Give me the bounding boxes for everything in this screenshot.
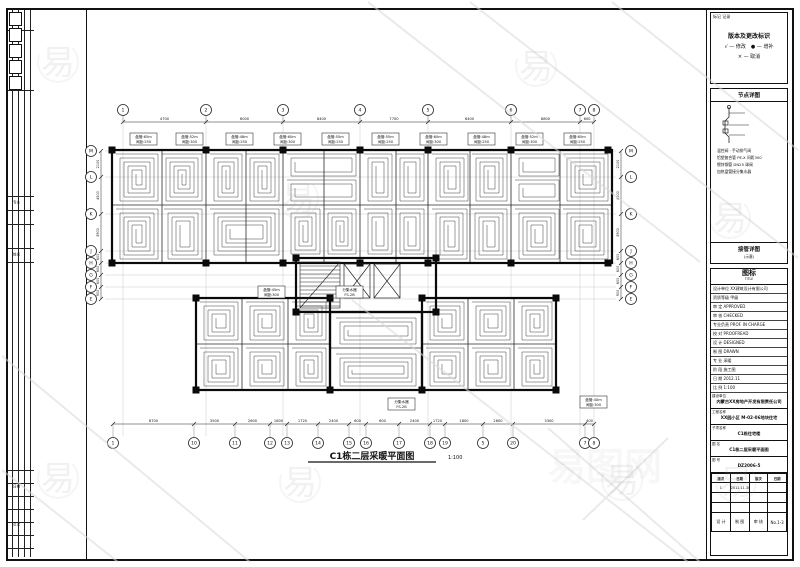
- svg-text:600: 600: [616, 278, 620, 284]
- staircase: [300, 262, 340, 308]
- title-block-field: 图 名C1栋二层采暖平面图: [711, 441, 787, 457]
- version-table-cell: 制 图: [730, 513, 749, 532]
- title-block-row: 资质等级 甲级: [711, 294, 787, 303]
- svg-text:间距:250: 间距:250: [378, 139, 394, 144]
- svg-text:盘管:52m: 盘管:52m: [181, 134, 198, 139]
- svg-text:1800: 1800: [274, 419, 284, 423]
- svg-text:G: G: [629, 273, 633, 279]
- axis-col-left: MLKJHGFE210045003900600600600900: [86, 146, 104, 305]
- svg-text:H: H: [89, 261, 92, 267]
- svg-text:间距:250: 间距:250: [136, 139, 152, 144]
- svg-text:600: 600: [354, 419, 362, 423]
- legend-corner-label: 标记 记录: [713, 15, 730, 20]
- svg-text:1:100: 1:100: [448, 455, 462, 461]
- svg-text:G: G: [89, 273, 93, 279]
- version-table-cell: 日期: [730, 474, 749, 483]
- title-block-field: 子项名称C1栋住宅楼: [711, 425, 787, 441]
- svg-text:盘管:45m: 盘管:45m: [263, 287, 280, 292]
- title-block-field: 工程名称XX园小区 M-02-06地块住宅: [711, 409, 787, 425]
- svg-text:7: 7: [579, 108, 582, 114]
- version-table-cell: 日期: [768, 474, 787, 483]
- svg-text:E: E: [630, 297, 633, 303]
- svg-text:盘管:60m: 盘管:60m: [425, 134, 442, 139]
- detail-annotation-line: 加热盘管接分集水器: [717, 168, 783, 175]
- title-block-row: 专 业 采暖: [711, 357, 787, 366]
- svg-text:F: F: [90, 285, 93, 291]
- svg-text:600: 600: [584, 117, 592, 121]
- svg-text:13: 13: [284, 441, 290, 447]
- svg-text:8800: 8800: [541, 117, 551, 121]
- svg-text:盘管:52m: 盘管:52m: [521, 134, 538, 139]
- svg-text:F: F: [630, 285, 633, 291]
- floor-plan-canvas: 1234567847006000840077006400880060011011…: [0, 0, 800, 567]
- svg-text:2400: 2400: [410, 419, 420, 423]
- svg-text:600: 600: [96, 266, 100, 272]
- title-block-row: 比 例 1:100: [711, 384, 787, 393]
- svg-text:3500: 3500: [210, 419, 220, 423]
- title-block: 图标 TITLE 设计单位 XX建筑设计有限公司资质等级 甲级审 定 APPRO…: [710, 268, 788, 556]
- drawing-title: C1栋二层采暖平面图1:100: [308, 450, 462, 462]
- version-table-cell: No.1-3: [768, 513, 787, 532]
- version-table-cell: [768, 493, 787, 503]
- detail-box: 节点详图 温控阀 · 手动排气阀铝塑复合管 PE-X 间距300镀锌钢管 DN2…: [710, 88, 788, 264]
- detail-annotation-line: 温控阀 · 手动排气阀: [717, 147, 783, 154]
- version-table-cell: [749, 483, 768, 493]
- svg-text:600: 600: [96, 278, 100, 284]
- svg-text:间距:250: 间距:250: [328, 139, 344, 144]
- title-block-row: 专业负责 PROF. IN CHARGE: [711, 321, 787, 330]
- title-block-row: 设 计 DESIGNED: [711, 339, 787, 348]
- svg-text:FS-2B: FS-2B: [344, 293, 355, 297]
- version-table-cell: [730, 503, 749, 513]
- svg-text:L: L: [90, 175, 93, 181]
- svg-text:7700: 7700: [389, 117, 399, 121]
- svg-text:2100: 2100: [96, 160, 100, 169]
- svg-text:8700: 8700: [149, 419, 159, 423]
- heating-coils: [116, 154, 608, 386]
- detail-footer: 接管详图: [711, 242, 787, 253]
- field-value: 内蒙古XX房地产开发有限责任公司: [711, 399, 787, 405]
- svg-text:间距:300: 间距:300: [586, 402, 602, 407]
- svg-text:4500: 4500: [616, 191, 620, 200]
- legend-title: 版本及更改标识: [711, 31, 787, 40]
- svg-text:盘管:55m: 盘管:55m: [327, 134, 344, 139]
- svg-text:16: 16: [363, 441, 369, 447]
- svg-text:2400: 2400: [329, 419, 339, 423]
- svg-text:400: 400: [586, 419, 594, 423]
- svg-text:15: 15: [346, 441, 352, 447]
- svg-text:1720: 1720: [433, 419, 443, 423]
- title-block-row: 日 期 2012.11: [711, 375, 787, 384]
- svg-text:2100: 2100: [616, 160, 620, 169]
- pipe-detail-sketch: [715, 103, 783, 145]
- version-table-cell: [749, 493, 768, 503]
- version-table-cell: [712, 503, 731, 513]
- title-block-field: 图 号DZ2006-5: [711, 457, 787, 473]
- svg-text:3300: 3300: [544, 419, 554, 423]
- title-block-row: 校 对 PROOFREAD: [711, 330, 787, 339]
- svg-text:J: J: [629, 249, 631, 255]
- detail-annotations: 温控阀 · 手动排气阀铝塑复合管 PE-X 间距300镀锌钢管 DN25 球阀加…: [717, 147, 783, 175]
- version-table-cell: [730, 493, 749, 503]
- title-block-field: 建设单位内蒙古XX房地产开发有限责任公司: [711, 393, 787, 409]
- svg-text:盘管:40m: 盘管:40m: [585, 397, 602, 402]
- svg-text:5: 5: [427, 108, 430, 114]
- svg-text:间距:300: 间距:300: [264, 292, 280, 297]
- field-value: XX园小区 M-02-06地块住宅: [711, 415, 787, 421]
- version-table-cell: [749, 503, 768, 513]
- title-block-row: 制 图 DRAWN: [711, 348, 787, 357]
- title-block-row: 设计单位 XX建筑设计有限公司: [711, 285, 787, 294]
- version-table: 版次日期版次日期12012.11.30设 计制 图审 核No.1-3: [711, 473, 787, 532]
- svg-text:900: 900: [96, 290, 100, 296]
- svg-text:3900: 3900: [616, 228, 620, 237]
- svg-text:1800: 1800: [459, 419, 469, 423]
- svg-text:17: 17: [396, 441, 402, 447]
- title-block-rows: 设计单位 XX建筑设计有限公司资质等级 甲级审 定 APPROVED审 核 CH…: [711, 285, 787, 393]
- svg-text:间距:300: 间距:300: [280, 139, 296, 144]
- detail-annotation-line: 铝塑复合管 PE-X 间距300: [717, 154, 783, 161]
- svg-text:1: 1: [112, 441, 115, 447]
- svg-text:间距:300: 间距:300: [182, 139, 198, 144]
- svg-text:600: 600: [616, 254, 620, 260]
- coil-info-boxes: 盘管:65m间距:250盘管:52m间距:300盘管:48m间距:250盘管:6…: [130, 133, 607, 410]
- revision-legend-box: 标记 记录 版本及更改标识 √ — 修改 ● — 增补 × — 取消: [710, 12, 788, 84]
- svg-text:8400: 8400: [317, 117, 327, 121]
- axis-col-right: MLKJHGFE210045003900600600600900: [616, 146, 637, 305]
- version-table-cell: 1: [712, 483, 731, 493]
- svg-text:4700: 4700: [160, 117, 170, 121]
- field-value: C1栋二层采暖平面图: [711, 447, 787, 453]
- detail-annotation-line: 镀锌钢管 DN25 球阀: [717, 161, 783, 168]
- svg-text:7: 7: [584, 441, 587, 447]
- svg-text:8: 8: [593, 441, 596, 447]
- version-table-cell: 审 核: [749, 513, 768, 532]
- svg-text:3900: 3900: [96, 228, 100, 237]
- svg-text:E: E: [90, 297, 93, 303]
- svg-text:600: 600: [616, 266, 620, 272]
- svg-text:6400: 6400: [465, 117, 475, 121]
- field-value: C1栋住宅楼: [711, 431, 787, 437]
- svg-text:900: 900: [616, 290, 620, 296]
- svg-text:盘管:65m: 盘管:65m: [569, 134, 586, 139]
- detail-footer-sub: (示意): [711, 254, 787, 260]
- version-table-cell: [768, 503, 787, 513]
- legend-row: × — 取消: [711, 53, 787, 60]
- svg-text:间距:250: 间距:250: [570, 139, 586, 144]
- version-table-cell: 版次: [712, 474, 731, 483]
- version-table-cell: 2012.11.30: [730, 483, 749, 493]
- svg-text:10: 10: [191, 441, 197, 447]
- svg-text:盘管:65m: 盘管:65m: [135, 134, 152, 139]
- svg-text:8: 8: [593, 108, 596, 114]
- svg-text:分集水器: 分集水器: [342, 287, 357, 292]
- version-table-cell: 设 计: [712, 513, 731, 532]
- version-table-cell: [768, 483, 787, 493]
- svg-text:1: 1: [122, 108, 125, 114]
- svg-text:盘管:48m: 盘管:48m: [473, 134, 490, 139]
- svg-text:2600: 2600: [493, 419, 503, 423]
- svg-text:6000: 6000: [240, 117, 250, 121]
- svg-text:盘管:60m: 盘管:60m: [279, 134, 296, 139]
- svg-text:20: 20: [510, 441, 516, 447]
- axis-row-top: 12345678470060008400770064008800600: [118, 105, 600, 125]
- svg-text:M: M: [629, 149, 633, 155]
- svg-text:盘管:48m: 盘管:48m: [231, 134, 248, 139]
- drawing-sheet: 专业 姓名 日期 页次 1234567847006000840077006400…: [0, 0, 800, 567]
- svg-text:19: 19: [442, 441, 448, 447]
- svg-text:14: 14: [315, 441, 321, 447]
- version-table-cell: 版次: [749, 474, 768, 483]
- right-panel: 标记 记录 版本及更改标识 √ — 修改 ● — 增补 × — 取消 节点详图 …: [706, 8, 792, 559]
- svg-text:盘管:55m: 盘管:55m: [377, 134, 394, 139]
- version-table-cell: [712, 493, 731, 503]
- field-value: DZ2006-5: [711, 463, 787, 468]
- svg-text:间距:250: 间距:250: [474, 139, 490, 144]
- title-block-header: 图标 TITLE: [711, 269, 787, 285]
- svg-text:间距:250: 间距:250: [232, 139, 248, 144]
- svg-text:600: 600: [96, 254, 100, 260]
- svg-text:间距:300: 间距:300: [522, 139, 538, 144]
- svg-text:6: 6: [510, 108, 513, 114]
- axis-row-bottom: 1101112131415161718195207887003500260018…: [108, 419, 600, 449]
- svg-text:2: 2: [205, 108, 208, 114]
- svg-text:H: H: [629, 261, 632, 267]
- svg-text:1720: 1720: [298, 419, 308, 423]
- svg-text:11: 11: [232, 441, 238, 447]
- title-block-row: 审 定 APPROVED: [711, 303, 787, 312]
- detail-header: 节点详图: [711, 91, 787, 102]
- svg-text:M: M: [89, 149, 93, 155]
- svg-text:间距:300: 间距:300: [426, 139, 442, 144]
- svg-text:4500: 4500: [96, 191, 100, 200]
- svg-text:12: 12: [267, 441, 273, 447]
- title-block-row: 阶 段 施工图: [711, 366, 787, 375]
- svg-text:5: 5: [482, 441, 485, 447]
- svg-text:FS-2B: FS-2B: [396, 405, 407, 409]
- svg-text:600: 600: [379, 419, 387, 423]
- svg-text:L: L: [630, 175, 633, 181]
- title-block-header-sub: TITLE: [711, 278, 787, 282]
- title-block-row: 审 核 CHECKED: [711, 312, 787, 321]
- svg-text:J: J: [89, 249, 91, 255]
- svg-text:4: 4: [359, 108, 362, 114]
- title-block-fields: 建设单位内蒙古XX房地产开发有限责任公司工程名称XX园小区 M-02-06地块住…: [711, 393, 787, 473]
- svg-text:分集水器: 分集水器: [394, 399, 409, 404]
- svg-text:C1栋二层采暖平面图: C1栋二层采暖平面图: [330, 450, 415, 462]
- svg-text:2600: 2600: [248, 419, 258, 423]
- svg-text:3: 3: [282, 108, 285, 114]
- legend-row: √ — 修改 ● — 增补: [711, 43, 787, 50]
- svg-text:18: 18: [427, 441, 433, 447]
